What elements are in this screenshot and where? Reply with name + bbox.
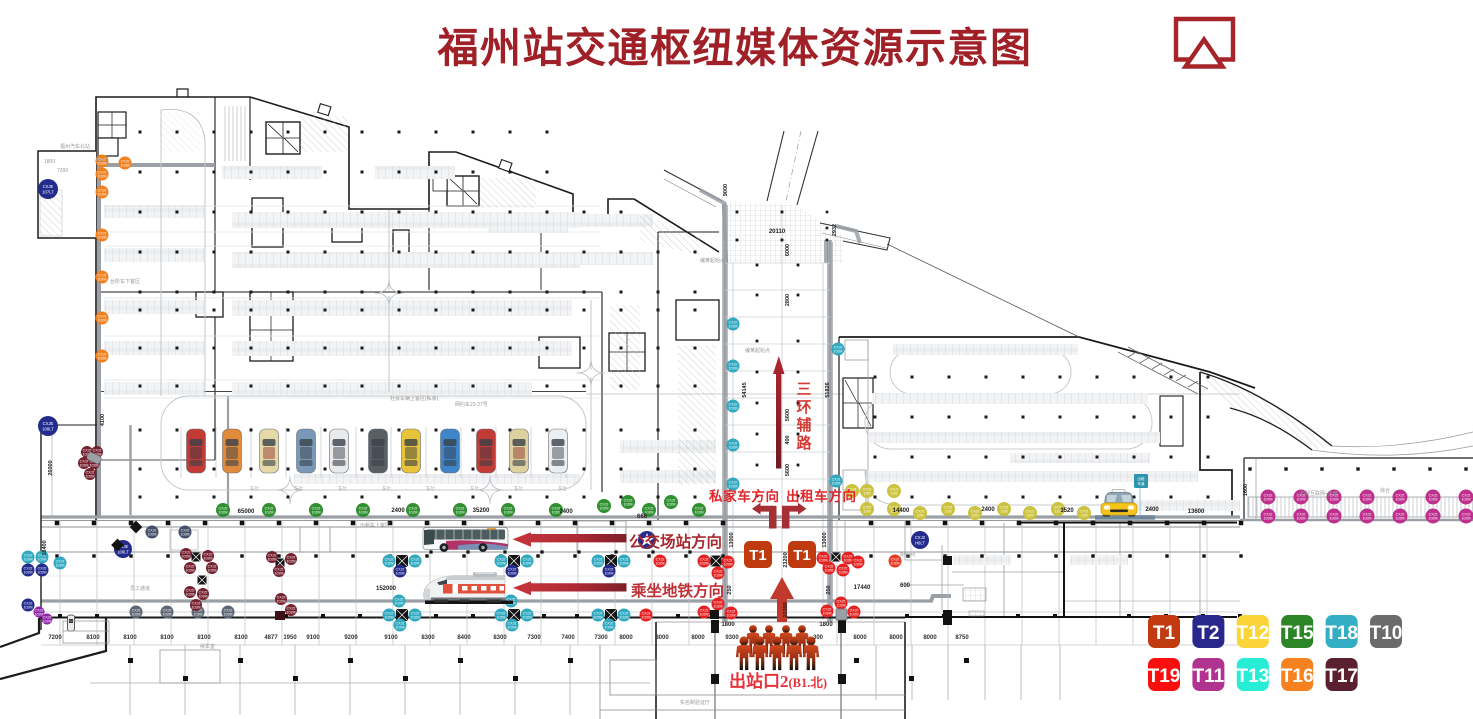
svg-text:乘坐地铁方向: 乘坐地铁方向 (630, 581, 724, 600)
svg-text:9000: 9000 (723, 184, 729, 196)
svg-text:13000: 13000 (822, 532, 828, 547)
svg-text:102M: 102M (1264, 498, 1273, 502)
svg-text:102M: 102M (148, 533, 157, 537)
svg-text:102M: 102M (594, 616, 603, 620)
svg-text:102M: 102M (839, 571, 848, 575)
svg-text:8000: 8000 (691, 635, 705, 641)
svg-text:250: 250 (826, 585, 832, 594)
svg-text:车位: 车位 (426, 485, 435, 492)
svg-text:8100: 8100 (234, 635, 248, 641)
svg-text:102M: 102M (729, 485, 738, 489)
svg-text:实名制验证厅: 实名制验证厅 (680, 699, 710, 706)
svg-text:102M: 102M (1396, 498, 1405, 502)
svg-text:T2: T2 (1197, 623, 1219, 644)
svg-text:候车室: 候车室 (200, 643, 215, 650)
svg-text:102M: 102M (700, 562, 709, 566)
svg-text:102M: 102M (265, 511, 274, 515)
svg-text:7300: 7300 (594, 635, 608, 641)
svg-text:26000: 26000 (48, 460, 54, 475)
svg-text:14400: 14400 (893, 508, 910, 514)
svg-text:102M: 102M (1396, 517, 1405, 521)
svg-text:20110: 20110 (769, 229, 786, 235)
svg-text:35200: 35200 (473, 508, 490, 514)
svg-text:102M: 102M (456, 511, 465, 515)
svg-text:T11: T11 (1193, 666, 1225, 687)
svg-text:102M: 102M (1429, 498, 1438, 502)
svg-text:8750: 8750 (955, 635, 969, 641)
svg-text:102M: 102M (24, 606, 33, 610)
svg-text:8300: 8300 (493, 635, 507, 641)
svg-text:102M: 102M (605, 626, 614, 630)
svg-text:102M: 102M (695, 511, 704, 515)
svg-text:250: 250 (727, 585, 733, 594)
svg-text:102M: 102M (411, 562, 420, 566)
svg-text:车位: 车位 (514, 485, 523, 492)
svg-text:102M: 102M (312, 511, 321, 515)
svg-text:102M: 102M (714, 574, 723, 578)
svg-text:102M: 102M (395, 602, 404, 606)
svg-text:车位: 车位 (250, 485, 259, 492)
svg-text:102M: 102M (1363, 517, 1372, 521)
svg-text:社会车辆上客区(私家): 社会车辆上客区(私家) (390, 395, 439, 402)
svg-text:102M: 102M (277, 600, 286, 604)
svg-text:102M: 102M (891, 562, 900, 566)
svg-text:1600: 1600 (1243, 484, 1249, 496)
svg-text:2400: 2400 (981, 507, 995, 513)
svg-text:4100: 4100 (100, 414, 106, 426)
svg-text:T15: T15 (1281, 623, 1314, 644)
svg-text:出租车上客区: 出租车上客区 (360, 522, 390, 529)
svg-text:102M: 102M (98, 236, 107, 240)
svg-text:102M: 102M (409, 511, 418, 515)
svg-text:102M: 102M (396, 572, 405, 576)
svg-text:152000: 152000 (376, 586, 397, 592)
svg-text:台阶车下客区: 台阶车下客区 (110, 278, 140, 285)
svg-text:102M: 102M (80, 464, 89, 468)
svg-text:12M: 12M (972, 514, 979, 518)
svg-text:1800: 1800 (721, 622, 735, 628)
svg-text:6000: 6000 (785, 244, 791, 256)
svg-text:2932: 2932 (832, 224, 838, 236)
svg-text:102M: 102M (1297, 498, 1306, 502)
svg-text:102M: 102M (714, 605, 723, 609)
svg-text:T19: T19 (1148, 666, 1181, 687)
svg-text:23200: 23200 (783, 552, 789, 567)
svg-text:65000: 65000 (238, 509, 255, 515)
svg-text:9200: 9200 (344, 635, 358, 641)
svg-text:102M: 102M (186, 569, 195, 573)
svg-text:102M: 102M (729, 446, 738, 450)
svg-text:8000: 8000 (619, 635, 633, 641)
svg-text:7400: 7400 (561, 635, 575, 641)
svg-text:102M: 102M (98, 193, 107, 197)
svg-text:编某起始点: 编某起始点 (700, 257, 725, 264)
svg-text:12M: 12M (1001, 510, 1008, 514)
svg-text:公交场站方向: 公交场站方向 (629, 532, 722, 551)
svg-text:8300: 8300 (421, 635, 435, 641)
svg-text:102M: 102M (837, 604, 846, 608)
svg-text:102M: 102M (396, 626, 405, 630)
svg-text:T17: T17 (1325, 666, 1358, 687)
svg-text:102M: 102M (219, 511, 228, 515)
svg-text:102M: 102M (1297, 517, 1306, 521)
svg-text:102M: 102M (163, 613, 172, 617)
svg-text:私家车方向: 私家车方向 (709, 488, 779, 504)
svg-text:102M: 102M (850, 613, 859, 617)
svg-text:1800: 1800 (44, 159, 55, 165)
svg-text:102M: 102M (667, 503, 676, 507)
svg-text:102M: 102M (385, 616, 394, 620)
svg-text:102M: 102M (508, 572, 517, 576)
svg-text:102M: 102M (132, 613, 141, 617)
svg-text:102M: 102M (834, 350, 843, 354)
svg-text:102M: 102M (98, 175, 107, 179)
svg-text:102M: 102M (43, 620, 52, 624)
svg-text:9100: 9100 (384, 635, 398, 641)
svg-text:13000: 13000 (729, 532, 735, 547)
svg-text:102M: 102M (819, 559, 828, 563)
svg-text:102M: 102M (523, 616, 532, 620)
svg-text:102M: 102M (121, 164, 130, 168)
svg-text:102M: 102M (1429, 517, 1438, 521)
svg-text:8000: 8000 (655, 635, 669, 641)
svg-text:102M: 102M (504, 511, 513, 515)
svg-text:编某起始点: 编某起始点 (745, 347, 770, 354)
svg-text:T12: T12 (1236, 623, 1269, 644)
svg-text:102M: 102M (497, 562, 506, 566)
svg-text:102M: 102M (497, 616, 506, 620)
svg-text:车位: 车位 (294, 485, 303, 492)
svg-text:102M: 102M (186, 593, 195, 597)
svg-text:12M: 12M (1081, 514, 1088, 518)
svg-text:102M: 102M (1363, 498, 1372, 502)
svg-text:102M: 102M (385, 562, 394, 566)
svg-text:8100: 8100 (197, 635, 211, 641)
svg-text:T1: T1 (749, 547, 767, 564)
svg-text:车位: 车位 (558, 485, 567, 492)
svg-text:出租: 出租 (1137, 476, 1145, 481)
svg-text:8100: 8100 (86, 635, 100, 641)
svg-text:102M: 102M (823, 612, 832, 616)
svg-text:12M: 12M (917, 514, 924, 518)
svg-text:51826: 51826 (825, 382, 831, 397)
svg-text:102M: 102M (181, 533, 190, 537)
svg-text:1800: 1800 (819, 622, 833, 628)
svg-text:102M: 102M (86, 475, 95, 479)
svg-text:102M: 102M (508, 626, 517, 630)
svg-text:102M: 102M (275, 572, 284, 576)
svg-text:出租车方向: 出租车方向 (786, 488, 856, 504)
svg-text:102M: 102M (90, 464, 99, 468)
svg-text:102M: 102M (56, 564, 65, 568)
svg-text:车位: 车位 (382, 485, 391, 492)
svg-text:102M: 102M (594, 562, 603, 566)
svg-text:2400: 2400 (1145, 507, 1159, 513)
svg-text:辅: 辅 (796, 416, 811, 434)
svg-text:T18: T18 (1325, 623, 1358, 644)
svg-text:102M: 102M (359, 511, 368, 515)
svg-text:9100: 9100 (306, 635, 320, 641)
svg-text:车道: 车道 (1137, 481, 1145, 486)
svg-text:668: 668 (637, 514, 648, 520)
svg-text:102M: 102M (600, 507, 609, 511)
svg-text:102M: 102M (729, 367, 738, 371)
svg-text:102M: 102M (98, 319, 107, 323)
svg-text:T10: T10 (1370, 623, 1403, 644)
svg-text:102M: 102M (38, 558, 47, 562)
svg-text:400: 400 (785, 435, 791, 444)
svg-text:9300: 9300 (725, 635, 739, 641)
svg-text:102M: 102M (1462, 517, 1471, 521)
svg-text:107LT: 107LT (42, 189, 54, 194)
svg-text:102M: 102M (182, 555, 191, 559)
svg-text:三: 三 (796, 381, 811, 398)
svg-text:102M: 102M (605, 572, 614, 576)
svg-text:2800: 2800 (785, 294, 791, 306)
svg-text:8400: 8400 (457, 635, 471, 641)
svg-text:T16: T16 (1281, 666, 1314, 687)
svg-text:配电间: 配电间 (900, 551, 915, 558)
svg-text:石材互联网+走廊: 石材互联网+走廊 (1300, 490, 1338, 497)
svg-text:8000: 8000 (889, 635, 903, 641)
svg-text:102M: 102M (523, 562, 532, 566)
svg-text:T1: T1 (793, 547, 811, 564)
svg-text:102M: 102M (844, 559, 853, 563)
svg-text:102M: 102M (194, 613, 203, 617)
svg-text:102M: 102M (411, 616, 420, 620)
svg-text:600: 600 (900, 583, 911, 589)
svg-text:102M: 102M (724, 563, 733, 567)
svg-text:102M: 102M (199, 595, 208, 599)
svg-text:106LT: 106LT (117, 549, 129, 554)
svg-text:7300: 7300 (527, 635, 541, 641)
svg-text:月900: 月900 (95, 158, 109, 164)
svg-text:员工通道: 员工通道 (130, 585, 150, 592)
svg-text:H6LT: H6LT (915, 540, 925, 545)
svg-text:12M: 12M (891, 492, 898, 496)
svg-text:102M: 102M (700, 613, 709, 617)
svg-text:4877: 4877 (264, 635, 278, 641)
svg-text:108LT: 108LT (42, 426, 54, 431)
svg-text:12M: 12M (864, 492, 871, 496)
svg-text:102M: 102M (656, 562, 665, 566)
svg-text:102M: 102M (1264, 517, 1273, 521)
svg-text:102M: 102M (38, 571, 47, 575)
svg-text:13600: 13600 (1188, 509, 1205, 515)
svg-text:300: 300 (813, 635, 824, 641)
svg-text:2400: 2400 (391, 508, 405, 514)
svg-text:102M: 102M (287, 560, 296, 564)
svg-text:7200: 7200 (48, 635, 62, 641)
svg-text:车位: 车位 (470, 485, 479, 492)
svg-text:路: 路 (796, 434, 812, 452)
svg-text:102M: 102M (825, 569, 834, 573)
svg-text:102M: 102M (192, 606, 201, 610)
svg-text:8000: 8000 (923, 635, 937, 641)
svg-text:8000: 8000 (853, 635, 867, 641)
svg-text:102M: 102M (98, 357, 107, 361)
svg-text:102M: 102M (204, 557, 213, 561)
svg-text:18400: 18400 (42, 540, 48, 555)
svg-text:车位: 车位 (338, 485, 347, 492)
svg-text:1950: 1950 (283, 635, 297, 641)
svg-text:102M: 102M (729, 325, 738, 329)
svg-text:102M: 102M (832, 482, 841, 486)
svg-text:5600: 5600 (785, 464, 791, 476)
svg-text:102M: 102M (98, 278, 107, 282)
svg-text:12M: 12M (945, 510, 952, 514)
svg-text:102M: 102M (620, 562, 629, 566)
svg-text:2400: 2400 (559, 509, 573, 515)
svg-text:102M: 102M (24, 571, 33, 575)
svg-text:102M: 102M (1330, 498, 1339, 502)
svg-text:8100: 8100 (123, 635, 137, 641)
svg-text:102M: 102M (287, 611, 296, 615)
svg-text:T1: T1 (1153, 623, 1176, 644)
svg-text:综合: 综合 (1380, 487, 1390, 494)
svg-text:8100: 8100 (160, 635, 174, 641)
svg-text:22300: 22300 (783, 602, 789, 617)
svg-text:12M: 12M (1027, 514, 1034, 518)
svg-text:102M: 102M (24, 558, 33, 562)
svg-text:102M: 102M (624, 503, 633, 507)
svg-text:5600: 5600 (785, 409, 791, 421)
svg-text:102M: 102M (642, 616, 651, 620)
svg-text:102M: 102M (727, 614, 736, 618)
svg-text:54145: 54145 (742, 382, 748, 397)
svg-text:3520: 3520 (1060, 508, 1074, 514)
svg-text:T13: T13 (1236, 666, 1269, 687)
svg-text:12M: 12M (864, 510, 871, 514)
svg-text:102M: 102M (1462, 498, 1471, 502)
svg-text:102M: 102M (1330, 517, 1339, 521)
svg-text:福州站交通枢纽媒体资源示意图: 福州站交通枢纽媒体资源示意图 (437, 25, 1033, 71)
svg-text:102M: 102M (620, 616, 629, 620)
svg-text:102M: 102M (224, 613, 233, 617)
svg-text:环: 环 (796, 399, 811, 416)
svg-text:7200: 7200 (57, 168, 68, 174)
svg-text:17440: 17440 (854, 585, 871, 591)
svg-text:102M: 102M (268, 558, 277, 562)
svg-text:102M: 102M (208, 569, 217, 573)
svg-text:网约车23-27号: 网约车23-27号 (455, 401, 488, 408)
svg-text:102M: 102M (729, 407, 738, 411)
svg-text:102M: 102M (854, 563, 863, 567)
svg-text:福州汽车北站: 福州汽车北站 (60, 143, 90, 150)
